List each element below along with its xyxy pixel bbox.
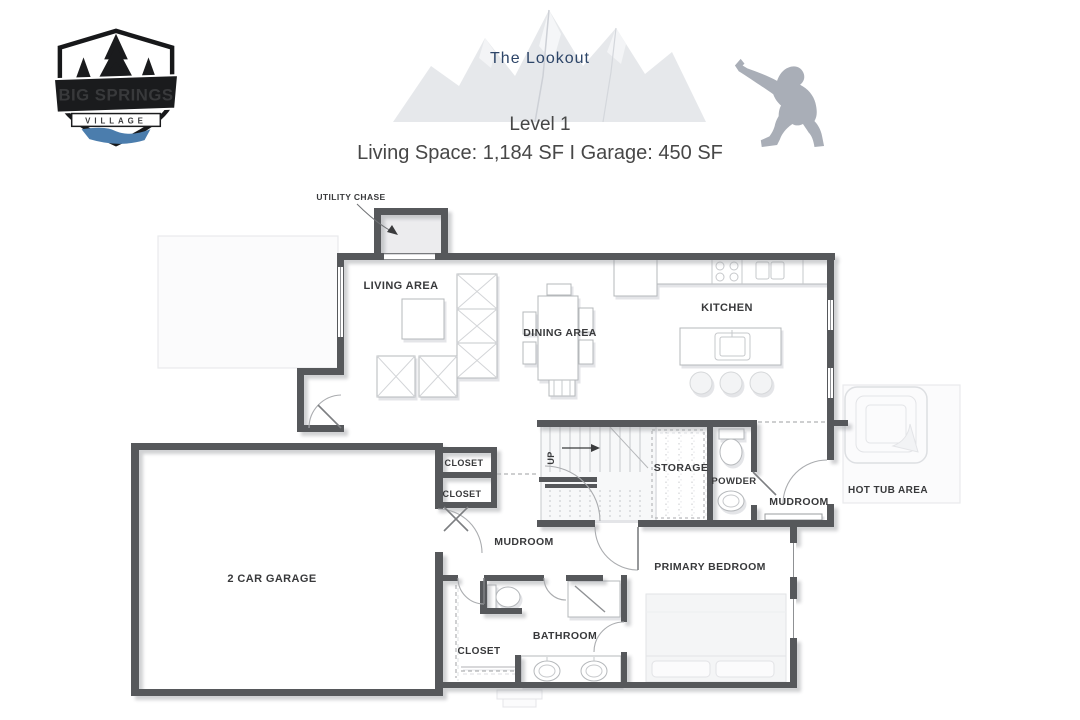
vanity-double-sink (521, 656, 621, 686)
sofa (457, 274, 497, 378)
armchair (419, 356, 457, 397)
floor-plan-sheet: The Lookout Level 1 Living Space: 1,184 … (0, 0, 1080, 720)
bathroom-toilet-icon (487, 585, 520, 609)
label-closet-bedroom: CLOSET (458, 646, 501, 657)
label-stairs-up: UP (546, 451, 556, 464)
label-dining-area: DINING AREA (523, 327, 596, 339)
label-bathroom: BATHROOM (533, 630, 597, 642)
kitchen-island (680, 328, 781, 394)
stairs (539, 423, 655, 520)
deck-ghost (158, 236, 338, 368)
label-garage: 2 CAR GARAGE (227, 573, 316, 585)
label-kitchen: KITCHEN (701, 302, 753, 314)
label-hot-tub-area: HOT TUB AREA (848, 485, 928, 496)
storage-outline (652, 430, 704, 518)
utility-chase-interior (381, 215, 441, 253)
floor-plan: UTILITY CHASE LIVING AREA DINING AREA KI… (0, 0, 1080, 720)
hot-tub (845, 387, 927, 463)
dining-table-set (523, 284, 593, 396)
stool (690, 372, 712, 394)
powder-toilet-icon (719, 429, 744, 465)
stool (720, 372, 742, 394)
label-utility-chase: UTILITY CHASE (316, 192, 385, 202)
bed (646, 594, 786, 682)
label-mudroom-center: MUDROOM (494, 536, 553, 548)
label-closet-upper: CLOSET (445, 458, 484, 468)
label-living-area: LIVING AREA (364, 280, 439, 292)
stool (750, 372, 772, 394)
label-powder: POWDER (711, 476, 756, 487)
label-primary-bedroom: PRIMARY BEDROOM (654, 561, 766, 573)
shower (568, 581, 620, 617)
coffee-table (402, 299, 444, 339)
label-closet-lower: CLOSET (443, 489, 482, 499)
mudroom-bench (765, 514, 822, 520)
armchair (377, 356, 415, 397)
kitchen-counter (614, 256, 828, 296)
porch-steps (497, 690, 542, 707)
powder-sink-icon (718, 491, 744, 511)
fridge-icon (614, 256, 657, 296)
label-mudroom-east: MUDROOM (769, 496, 828, 508)
label-storage: STORAGE (654, 462, 709, 474)
